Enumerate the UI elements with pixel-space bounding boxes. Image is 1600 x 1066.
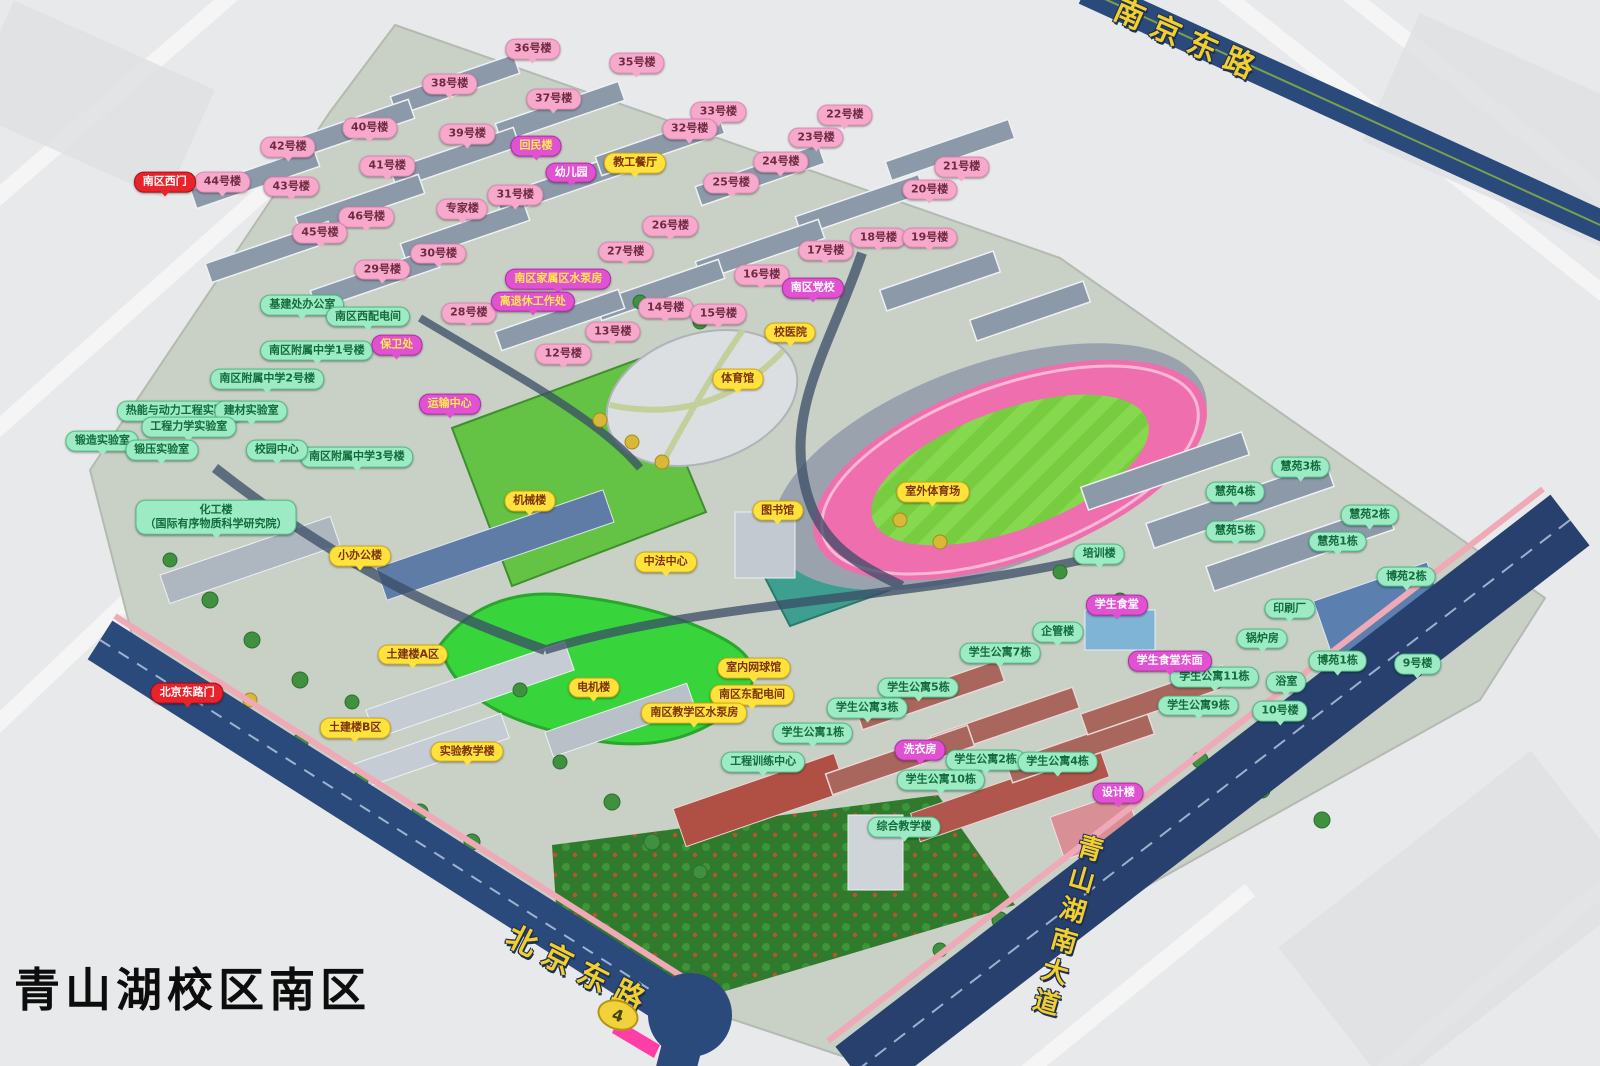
map-label: 专家楼: [437, 199, 488, 220]
map-label: 9号楼: [1394, 654, 1442, 675]
map-label: 工程力学实验室: [141, 417, 236, 438]
map-label: 学生公寓4栋: [1017, 752, 1098, 773]
map-label: 综合教学楼: [868, 817, 941, 838]
map-label: 学生公寓7栋: [960, 643, 1041, 664]
map-label: 学生公寓9栋: [1158, 695, 1239, 716]
map-label: 37号楼: [526, 89, 581, 110]
map-label: 培训楼: [1074, 544, 1125, 565]
map-label: 慧苑2栋: [1340, 505, 1399, 526]
map-label: 南区教学区水泵房: [641, 703, 747, 724]
map-title: 青山湖校区南区: [14, 954, 371, 1020]
map-label: 图书馆: [752, 500, 803, 521]
map-label: 13号楼: [585, 321, 640, 342]
map-label: 企管楼: [1032, 622, 1083, 643]
map-label: 36号楼: [505, 39, 560, 60]
map-label: 南区西配电间: [326, 306, 410, 327]
map-label: 40号楼: [342, 118, 397, 139]
map-label: 慧苑4栋: [1206, 482, 1265, 503]
map-label: 24号楼: [753, 152, 808, 173]
map-label: 45号楼: [292, 223, 347, 244]
map-label: 20号楼: [902, 179, 957, 200]
map-label: 土建楼B区: [320, 718, 390, 739]
map-label: 锅炉房: [1237, 628, 1288, 649]
map-label: 南区附属中学2号楼: [210, 369, 324, 390]
map-label: 41号楼: [360, 156, 415, 177]
map-label: 23号楼: [788, 127, 843, 148]
map-label: 22号楼: [817, 105, 872, 126]
map-label: 44号楼: [195, 172, 250, 193]
map-label: 中法中心: [635, 551, 697, 572]
map-label: 体育馆: [712, 369, 763, 390]
map-label: 学生公寓5栋: [878, 677, 959, 698]
map-label: 17号楼: [798, 240, 853, 261]
map-label: 慧苑3栋: [1271, 457, 1330, 478]
map-label: 慧苑5栋: [1206, 520, 1265, 541]
map-label: 15号楼: [691, 304, 746, 325]
map-label: 29号楼: [355, 259, 410, 280]
map-label: 南区党校: [782, 277, 844, 298]
map-label: 北京东路门: [151, 683, 224, 704]
map-label: 31号楼: [488, 185, 543, 206]
map-label: 室外体育场: [896, 482, 969, 503]
map-label: 28号楼: [441, 303, 496, 324]
map-label: 42号楼: [260, 137, 315, 158]
map-label: 回民楼: [511, 136, 562, 157]
map-label: 12号楼: [536, 344, 591, 365]
map-label: 校园中心: [246, 439, 308, 460]
label-layer: 36号楼35号楼38号楼37号楼33号楼32号楼22号楼23号楼40号楼39号楼…: [0, 0, 1600, 1066]
map-label: 博苑1栋: [1308, 651, 1367, 672]
map-label: 小办公楼: [329, 546, 391, 567]
map-label: 土建楼A区: [378, 644, 449, 665]
map-label: 学生公寓10栋: [897, 770, 985, 791]
map-label: 38号楼: [422, 74, 477, 95]
map-label: 幼儿园: [546, 162, 597, 183]
map-label: 锻压实验室: [125, 439, 198, 460]
map-label: 机械楼: [504, 491, 555, 512]
map-label: 学生食堂东面: [1128, 651, 1212, 672]
map-label: 浴室: [1266, 672, 1306, 693]
map-label: 教工餐厅: [604, 153, 666, 174]
map-label: 室内网球馆: [717, 658, 790, 679]
map-label: 30号楼: [411, 243, 466, 264]
map-label: 学生公寓2栋: [945, 750, 1026, 771]
map-label: 16号楼: [734, 265, 789, 286]
map-label: 南区附属中学1号楼: [260, 340, 374, 361]
map-label: 25号楼: [704, 173, 759, 194]
map-label: 工程训练中心: [721, 752, 805, 773]
map-label: 32号楼: [662, 119, 717, 140]
map-label: 39号楼: [440, 124, 495, 145]
map-label: 印刷厂: [1264, 598, 1315, 619]
map-label: 26号楼: [643, 216, 698, 237]
map-label: 27号楼: [598, 241, 653, 262]
map-label: 慧苑1栋: [1308, 531, 1367, 552]
map-label: 化工楼 （国际有序物质科学研究院）: [136, 500, 297, 535]
map-label: 学生公寓1栋: [772, 723, 853, 744]
map-label: 43号楼: [264, 176, 319, 197]
map-label: 14号楼: [638, 298, 693, 319]
map-label: 学生公寓3栋: [827, 697, 908, 718]
map-label: 南区附属中学3号楼: [300, 447, 414, 468]
map-label: 洗衣房: [895, 740, 946, 761]
map-label: 离退休工作处: [491, 291, 575, 312]
map-label: 10号楼: [1252, 701, 1307, 722]
map-label: 保卫处: [371, 335, 422, 356]
map-label: 46号楼: [339, 207, 394, 228]
map-label: 学生食堂: [1086, 595, 1148, 616]
map-label: 21号楼: [934, 157, 989, 178]
map-label: 运输中心: [419, 394, 481, 415]
map-label: 电机楼: [568, 677, 619, 698]
map-label: 35号楼: [609, 53, 664, 74]
map-label: 南区家属区水泵房: [505, 269, 611, 290]
map-label: 设计楼: [1093, 783, 1144, 804]
map-label: 校医院: [765, 322, 816, 343]
map-label: 实验教学楼: [431, 741, 504, 762]
map-label: 19号楼: [902, 227, 957, 248]
map-label: 18号楼: [851, 227, 906, 248]
campus-map: 36号楼35号楼38号楼37号楼33号楼32号楼22号楼23号楼40号楼39号楼…: [0, 0, 1600, 1066]
map-label: 博苑2栋: [1377, 566, 1436, 587]
map-label: 南区西门: [134, 172, 196, 193]
